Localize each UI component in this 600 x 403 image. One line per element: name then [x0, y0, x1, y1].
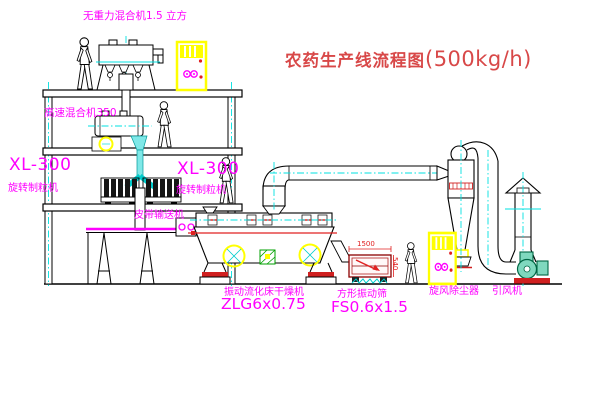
dryer-feet — [200, 263, 336, 284]
dryer-outlet-chute — [331, 241, 349, 262]
dimension-screen-length: 1500 — [357, 241, 375, 248]
label-high-speed-mixer: 高速混合机350 — [44, 108, 117, 119]
label-granulator-model-right: XL-300 — [177, 161, 239, 178]
control-cabinet-ground — [429, 233, 456, 284]
cad-canvas: 农药生产线流程图(500kg/h) 无重力混合机1.5 立方 高速混合机350 … — [0, 0, 600, 403]
label-dryer-model: ZLG6x0.75 — [221, 297, 306, 313]
label-granulator-name-left: 旋转制粒机 — [8, 184, 58, 194]
label-granulator-name-right: 旋转制粒机 — [176, 186, 226, 196]
drawing-title-capacity: (500kg/h) — [425, 47, 532, 71]
label-cyclone: 旋风除尘器 — [429, 287, 479, 297]
rotary-granulator-left — [101, 178, 139, 205]
fluid-bed-dryer — [188, 207, 349, 284]
granulator-drop-chute — [135, 188, 145, 230]
drawing-title: 农药生产线流程图(500kg/h) — [285, 47, 532, 71]
dryer-nameplate — [260, 250, 275, 264]
belt-conveyor — [86, 218, 196, 284]
exhaust-duct — [263, 162, 446, 214]
vibrating-screen — [349, 246, 394, 283]
label-granulator-model-left: XL-300 — [9, 157, 71, 174]
worker-figure-ground — [405, 243, 417, 283]
label-fan: 引风机 — [492, 287, 522, 297]
worker-figure-level2 — [158, 102, 172, 147]
gravity-mixer — [96, 40, 163, 116]
drawing-title-text: 农药生产线流程图 — [285, 51, 425, 70]
control-cabinet-roof — [177, 42, 206, 90]
dimension-screen-height: 540 — [391, 257, 398, 270]
label-screen-model: FS0.6x1.5 — [331, 300, 408, 316]
induced-draft-fan — [514, 252, 550, 284]
label-belt-conveyor: 皮带输送机 — [134, 211, 184, 221]
label-gravity-mixer: 无重力混合机1.5 立方 — [83, 11, 187, 22]
worker-figure-roof — [77, 38, 92, 89]
